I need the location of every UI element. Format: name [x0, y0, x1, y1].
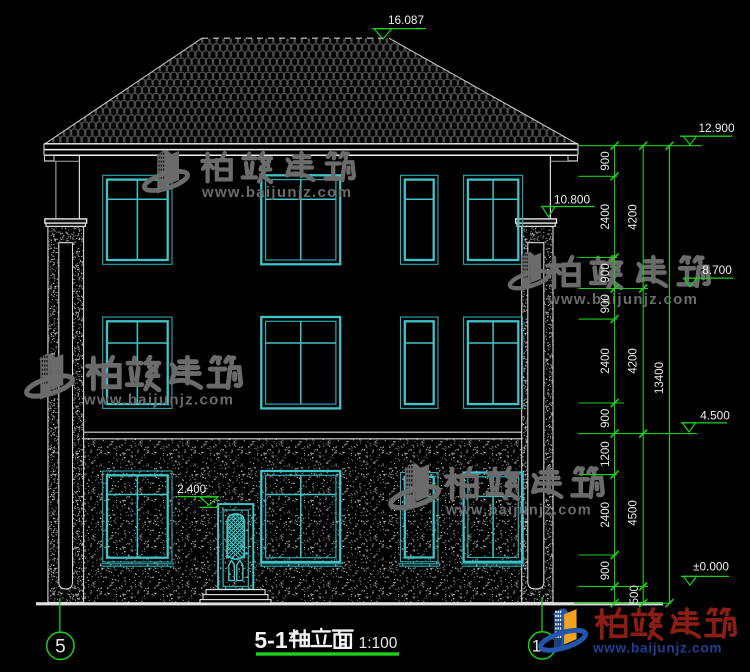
svg-text:2.400: 2.400: [177, 484, 206, 496]
svg-text:www.baijunjz.com: www.baijunjz.com: [83, 392, 234, 409]
svg-text:8.700: 8.700: [702, 263, 732, 277]
svg-text:±0.000: ±0.000: [693, 559, 729, 573]
svg-text:4.500: 4.500: [700, 409, 730, 423]
svg-text:10.800: 10.800: [554, 193, 591, 207]
svg-text:4500: 4500: [628, 500, 640, 526]
svg-text:2400: 2400: [600, 502, 612, 528]
svg-text:900: 900: [600, 263, 612, 282]
svg-text:900: 900: [600, 151, 612, 170]
svg-text:4200: 4200: [628, 204, 640, 230]
svg-text:500: 500: [629, 585, 641, 604]
svg-text:900: 900: [600, 561, 612, 580]
svg-text:1200: 1200: [600, 441, 612, 467]
svg-text:13400: 13400: [654, 362, 666, 394]
svg-text:900: 900: [600, 409, 612, 428]
svg-text:5: 5: [55, 637, 66, 658]
svg-text:900: 900: [600, 294, 612, 313]
svg-text:5-1: 5-1: [254, 627, 287, 653]
svg-text:www.baijunjz.com: www.baijunjz.com: [547, 291, 698, 308]
svg-text:2400: 2400: [600, 348, 612, 374]
svg-text:www.baijunjz.com: www.baijunjz.com: [201, 184, 352, 201]
svg-text:12.900: 12.900: [698, 121, 735, 135]
svg-text:4200: 4200: [628, 348, 640, 374]
svg-text:1:100: 1:100: [359, 635, 398, 652]
svg-text:16.087: 16.087: [388, 13, 424, 27]
svg-text:2400: 2400: [600, 204, 612, 230]
svg-text:www.baijunjz.com: www.baijunjz.com: [592, 641, 722, 656]
svg-text:www.baijunjz.com: www.baijunjz.com: [445, 503, 592, 519]
